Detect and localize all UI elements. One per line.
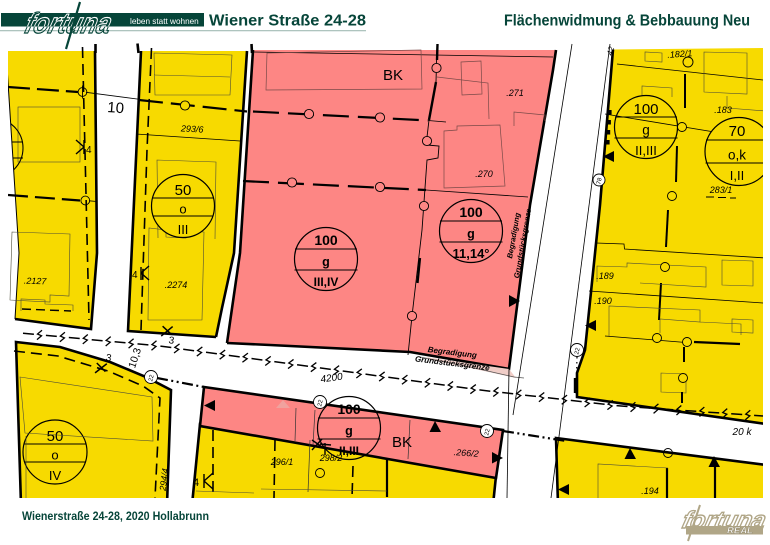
svg-text:3: 3 [168,335,175,347]
svg-text:g: g [467,227,475,241]
svg-text:.182/1: .182/1 [667,48,693,60]
svg-text:100: 100 [314,232,338,248]
svg-text:.183: .183 [714,105,732,115]
svg-text:Wienerstraße 24-28, 2020 Holla: Wienerstraße 24-28, 2020 Hollabrunn [22,509,209,523]
svg-text:.190: .190 [594,296,612,306]
svg-text:o,k: o,k [728,148,746,163]
svg-text:100: 100 [337,401,361,417]
svg-text:4: 4 [193,477,199,489]
svg-text:II,III: II,III [635,143,657,158]
svg-text:.271: .271 [506,88,524,98]
svg-text:leben statt wohnen: leben statt wohnen [130,17,199,26]
svg-text:11,14°: 11,14° [452,246,489,261]
svg-text:50: 50 [47,428,64,445]
svg-text:g: g [322,255,330,269]
svg-text:283/1: 283/1 [709,185,733,195]
svg-text:4200: 4200 [320,371,344,385]
svg-text:.2127: .2127 [24,276,48,287]
svg-text:Flächenwidmung & Bebbauung Neu: Flächenwidmung & Bebbauung Neu [504,13,750,30]
svg-text:BK: BK [383,67,403,84]
svg-text:o: o [179,202,186,217]
svg-text:100: 100 [633,101,658,118]
svg-text:g: g [642,123,650,138]
svg-text:.189: .189 [596,271,614,281]
svg-text:50: 50 [175,182,192,199]
svg-text:fortuna: fortuna [680,507,769,534]
svg-text:10,3: 10,3 [126,346,144,369]
svg-text:.266/2: .266/2 [453,447,479,459]
svg-text:70: 70 [729,123,746,140]
svg-text:.2274: .2274 [165,280,188,290]
svg-text:IV: IV [49,468,62,483]
svg-text:20 k: 20 k [732,427,753,438]
svg-text:100: 100 [459,204,483,220]
svg-text:g: g [345,424,353,438]
svg-text:.194: .194 [641,486,659,496]
svg-text:298/2: 298/2 [319,453,343,463]
svg-text:10: 10 [107,99,125,117]
svg-text:4: 4 [86,145,92,156]
svg-text:4: 4 [132,270,138,281]
svg-text:III,IV: III,IV [314,275,339,289]
svg-text:BK: BK [392,434,412,451]
svg-text:.270: .270 [475,169,493,179]
svg-text:293/6: 293/6 [180,123,204,134]
svg-text:Wiener Straße 24-28: Wiener Straße 24-28 [209,13,366,30]
svg-text:III: III [178,222,189,237]
svg-text:REAL: REAL [727,526,753,537]
svg-text:I,II: I,II [730,168,744,183]
svg-text:o: o [51,448,58,463]
svg-text:296/1: 296/1 [270,457,294,467]
